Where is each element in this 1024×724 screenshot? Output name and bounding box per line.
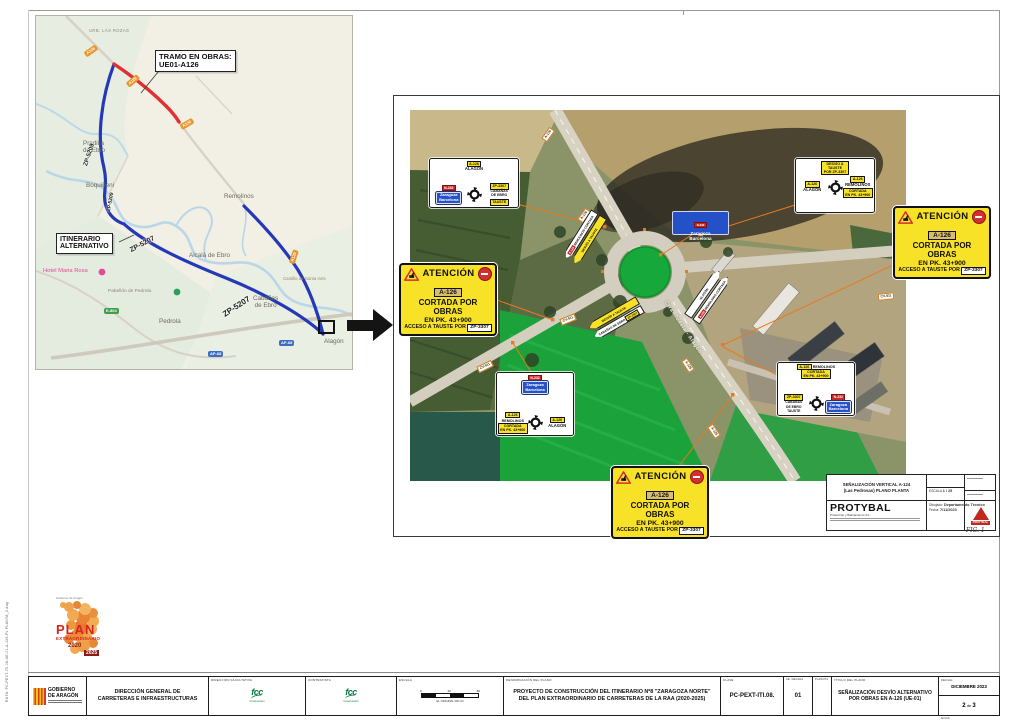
direccion-general-label: DIRECCIÓN GENERAL DECARRETERAS E INFRAES… (98, 689, 197, 702)
figure-label: FIG. 1 (966, 527, 985, 534)
attention-line2: EN PK. 43+900 (404, 317, 492, 325)
map-label-urbanization: URB. LAS ROZAS (89, 29, 129, 34)
attention-line3: ACCESO A TAUSTE POR ZP-3307 (898, 267, 986, 274)
titlebar-hairline (28, 672, 1000, 673)
roundabout-icon (809, 396, 824, 411)
attention-road-badge: A-126 (646, 491, 674, 500)
no-entry-icon (972, 210, 986, 224)
attention-title: ATENCIÓN (422, 269, 474, 280)
company-logo-name: PROTYBAL (971, 521, 990, 525)
road-shield-ap68: AP-68 (208, 351, 223, 357)
map-label-boquineni: Boquiñeni (86, 183, 114, 190)
roundabout-icon (828, 180, 843, 195)
plan-extraordinario-logo: Gobierno de Aragón PLAN EXTRAORDINARIO 2… (42, 596, 122, 670)
photo-date: Fecha: 7/11/2023 (929, 508, 962, 513)
scale-bar (421, 693, 479, 698)
route-badge: N-232 (528, 375, 542, 381)
attention-line2: EN PK. 43+900 (898, 260, 986, 268)
route-badge: A-126 (505, 412, 520, 419)
fecha-hoja-cell: FECHA: DICIEMBRE 2023 HOJA 2 de 3 (939, 677, 999, 715)
attention-sign-east: ATENCIÓN A-126 CORTADA POR OBRAS EN PK. … (893, 206, 991, 279)
attention-line1: CORTADA POR OBRAS (404, 299, 492, 317)
roadworks-icon (898, 211, 913, 224)
motorway-destination-box: ZaragozaBarcelona (826, 401, 851, 413)
hoja-row: HOJA 2 de 3 (939, 696, 999, 715)
plancha-cell: PLANCHA (813, 677, 832, 715)
escala-cell: ESCALA 04080 EL ORIGINAL DIN A3 (397, 677, 504, 715)
road-shield-e804: E-804 (104, 308, 119, 314)
attention-line1: CORTADA POR OBRAS (616, 502, 704, 520)
company-subtitle: Protección y Balizamiento S.L. (830, 514, 923, 518)
map-label-pedrola: Pedrola (159, 319, 181, 326)
plano-title: SEÑALIZACIÓN DESVÍO ALTERNATIVOPOR OBRAS… (838, 690, 932, 703)
map-label-pabellon: Pabellón de Pedrola (108, 289, 151, 294)
fcc-logo: fccConstrucción (343, 688, 358, 704)
attention-line2: EN PK. 43+900 (616, 520, 704, 528)
scale-note: EL ORIGINAL DIN A3 (437, 699, 464, 703)
road-shield-ap68: AP-68 (279, 340, 294, 346)
callout-works-section: TRAMO EN OBRAS:UE01-A126 (155, 50, 236, 72)
attention-sign-south: ATENCIÓN A-126 CORTADA POR OBRAS EN PK. … (611, 466, 709, 539)
file-path-note: RUTA: PC-PEXT-ITI.08-UE-01-A-126-PL PLAN… (5, 602, 9, 702)
attention-line3: ACCESO A TAUSTE POR ZP-3307 (404, 324, 492, 331)
attention-line3: ACCESO A TAUSTE POR ZP-3307 (616, 527, 704, 534)
route-badge: N-232 (442, 185, 456, 191)
title-bar: GOBIERNODE ARAGÓN DIRECCIÓN GENERAL DECA… (28, 676, 1000, 716)
closed-note: CORTADAEN PK. 43+900 (498, 423, 528, 433)
motorway-destination-box: ZaragozaBarcelona (522, 381, 547, 393)
sheet-frame-left (28, 10, 29, 716)
park-poi-dot (174, 289, 181, 296)
sign-panel-southwest: N-232 ZaragozaBarcelona A-126 REMOLINOS … (496, 372, 574, 436)
sheet-frame-top (28, 10, 1000, 11)
project-title: PROYECTO DE CONSTRUCCIÓN DEL ITINERARIO … (513, 689, 710, 703)
map-label-castillo: Castillo de Santa Inés (283, 277, 326, 282)
contratista-cell: CONTRATISTA fccConstrucción (306, 677, 397, 715)
roundabout-icon (467, 187, 482, 202)
fecha-row: FECHA: DICIEMBRE 2023 (939, 677, 999, 696)
titulo-plano-cell: TÍTULO DEL PLANO SEÑALIZACIÓN DESVÍO ALT… (832, 677, 939, 715)
closed-note: CORTADAEN PK. 43+900 (801, 369, 831, 379)
detail-arrow-head-icon (373, 309, 393, 341)
direccion-general-cell: DIRECCIÓN GENERAL DECARRETERAS E INFRAES… (87, 677, 209, 715)
ud-value: 01 (795, 693, 802, 699)
direccion-facultativa-cell: DIRECCIÓN FACULTATIVA fccConstrucción (209, 677, 306, 715)
attention-line1: CORTADA POR OBRAS (898, 242, 986, 260)
gobierno-name: GOBIERNODE ARAGÓN (48, 688, 82, 699)
blue-direction-sign: N-232 Zaragoza Barcelona (672, 211, 729, 235)
roundabout-icon (528, 415, 543, 430)
company-name: PROTYBAL (830, 503, 923, 514)
photo-scale: ESCALA 1 / 25 (927, 488, 964, 495)
project-cell: DENOMINACIÓN DEL PLANO PROYECTO DE CONST… (504, 677, 721, 715)
closed-note: CORTADAEN PK. 43+900 (843, 188, 873, 198)
detail-arrow (347, 320, 375, 331)
attention-sign-west: ATENCIÓN A-126 CORTADA POR OBRAS EN PK. … (399, 263, 497, 336)
motorway-destination-box: ZaragozaBarcelona (436, 192, 461, 204)
hotel-poi-dot (99, 269, 106, 276)
ud-cell: UE. DECADA 01 (784, 677, 813, 715)
plan-sheet: URB. LAS ROZAS Pradillade Ebro Boquiñeni… (0, 0, 1024, 724)
clave-cell: CLAVE PC-PEXT-ITI.08. (721, 677, 784, 715)
aragon-dots-icon (60, 602, 66, 608)
callout-alternative-itinerary: ITINERARIOALTERNATIVO (56, 233, 113, 254)
company-logo-icon (973, 507, 989, 520)
map-label-remolinos: Remolinos (224, 194, 254, 201)
gobierno-logo-cell: GOBIERNODE ARAGÓN (29, 677, 87, 715)
sheet-frame-tick (683, 10, 684, 15)
no-entry-icon (690, 470, 704, 484)
roadworks-icon (616, 471, 631, 484)
map-label-hotel: Hotel Maria Rosa (43, 268, 88, 274)
detail-area-marker (318, 320, 335, 334)
attention-title: ATENCIÓN (916, 212, 968, 223)
detour-note: DESVÍO ATAUSTEPOR ZP-3307 (821, 161, 849, 175)
attention-road-badge: A-126 (434, 288, 462, 297)
sign-panel-northeast: DESVÍO ATAUSTEPOR ZP-3307 A-126 ALAGÓN A… (795, 158, 875, 213)
aragon-flag-icon (33, 688, 46, 705)
attention-road-badge: A-126 (928, 231, 956, 240)
route-badge: N-232 (831, 394, 845, 400)
map-label-alcala: Alcalá de Ebro (189, 253, 230, 260)
roadworks-icon (404, 268, 419, 281)
fecha-value: DICIEMBRE 2023 (941, 684, 997, 689)
photo-title: SEÑALIZACIÓN VERTICAL A-124(Las Pedrosas… (843, 482, 911, 493)
map-label-alagon: Alagón (324, 339, 344, 346)
clave-value: PC-PEXT-ITI.08. (730, 693, 775, 699)
map-label-cabanas: Cabañasde Ebro (253, 296, 278, 309)
sign-panel-northwest: A-126 ALAGÓN N-232 ZaragozaBarcelona ZP-… (429, 158, 519, 208)
hoja-value: 2 de 3 (941, 703, 997, 709)
photo-title-block: SEÑALIZACIÓN VERTICAL A-124(Las Pedrosas… (826, 474, 996, 531)
attention-title: ATENCIÓN (634, 472, 686, 483)
fcc-logo: fccConstrucción (249, 688, 264, 704)
no-entry-icon (478, 267, 492, 281)
sign-panel-southeast: A-126 REMOLINOS CORTADAEN PK. 43+900 ZP-… (777, 362, 855, 416)
